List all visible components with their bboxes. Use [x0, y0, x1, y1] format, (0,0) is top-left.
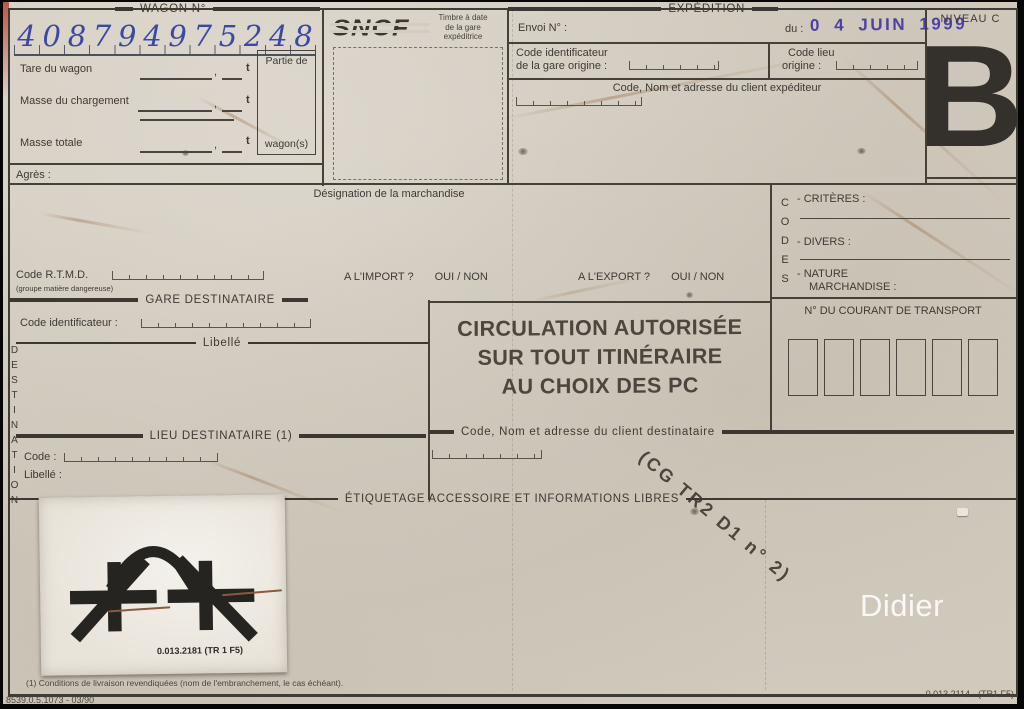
tare-line — [140, 78, 212, 80]
circulation-stamp: CIRCULATION AUTORISÉE SUR TOUT ITINÉRAIR… — [432, 313, 769, 402]
divider — [507, 8, 509, 184]
courant-box — [824, 339, 854, 396]
rtmd-label: Code R.T.M.D. — [16, 269, 88, 281]
code-identificateur-field — [141, 319, 311, 328]
sticker-ref: 0.013.2181 (TR 1 F5) — [157, 645, 243, 656]
criteres-label: - CRITÈRES : — [797, 193, 865, 205]
lieu-libelle-label: Libellé : — [24, 469, 62, 481]
courant-title: N° DU COURANT DE TRANSPORT — [772, 305, 1014, 317]
client-destinataire-code-field — [432, 450, 542, 459]
wagon-header-label: WAGON N° — [140, 3, 206, 15]
courant-box — [968, 339, 998, 396]
wagon-digit: 5 — [215, 21, 240, 54]
agres-divider — [8, 163, 322, 165]
codes-vertical-label: CODES — [779, 197, 791, 292]
form-ref-left: 8539.0.5.1073 - 03/90 — [6, 695, 94, 705]
charge-unit: t — [246, 94, 250, 106]
charge-decimal-line — [222, 110, 242, 112]
wagon-digit: 7 — [90, 21, 115, 54]
timbre-label: Timbre à date de la gare expéditrice — [420, 13, 506, 42]
extra-line — [140, 119, 234, 121]
tare-label: Tare du wagon — [20, 63, 92, 75]
lieu-code-label: Code : — [24, 451, 56, 463]
divider — [322, 8, 324, 186]
wagon-digit: 8 — [64, 21, 89, 54]
totale-line — [140, 151, 212, 153]
totale-decimal-line — [222, 151, 242, 153]
export-oui-non: OUI / NON — [671, 271, 724, 283]
tare-decimal-line — [222, 78, 242, 80]
courant-box — [932, 339, 962, 396]
envoi-label: Envoi N° : — [518, 22, 567, 34]
partie-de-wagons-box: Partie de wagon(s) — [257, 50, 316, 155]
code-ident-gare-label-2: de la gare origine : — [516, 60, 607, 72]
scanned-waybill-scene: WAGON N° 4 0 8 7 9 4 9 7 5 2 4 8 Partie … — [0, 0, 1024, 709]
designation-header: Désignation de la marchandise — [8, 188, 770, 200]
wagon-digit: 4 — [14, 21, 39, 54]
wagon-digit: 7 — [190, 21, 215, 54]
code-lieu-label-2: origine : — [782, 60, 821, 72]
courant-code-boxes — [788, 339, 998, 396]
divider — [507, 42, 925, 44]
fold-line — [765, 500, 766, 690]
nature-label-1: - NATURE — [797, 268, 848, 280]
wagon-digit: 0 — [39, 21, 64, 54]
client-expediteur-header: Code, Nom et adresse du client expéditeu… — [508, 82, 926, 94]
totale-label: Masse totale — [20, 137, 82, 149]
client-destinataire-header: Code, Nom et adresse du client destinata… — [430, 426, 1014, 438]
code-identificateur-label: Code identificateur : — [20, 317, 118, 329]
watermark: Didier — [860, 588, 944, 624]
nature-label-2: MARCHANDISE : — [809, 281, 896, 293]
courant-box — [788, 339, 818, 396]
courant-box — [860, 339, 890, 396]
totale-unit: t — [246, 135, 250, 147]
export-question: A L'EXPORT ? OUI / NON — [578, 271, 724, 283]
hump-shunting-label: 0.013.2181 (TR 1 F5) — [39, 494, 287, 675]
rtmd-field — [112, 271, 264, 280]
tare-unit: t — [246, 62, 250, 74]
code-lieu-field — [836, 61, 918, 70]
comma: , — [214, 98, 217, 110]
charge-label: Masse du chargement — [20, 95, 129, 107]
code-ident-gare-label-1: Code identificateur — [516, 47, 608, 59]
courant-box — [896, 339, 926, 396]
priority-letter: B — [925, 22, 1016, 173]
code-lieu-label-1: Code lieu — [788, 47, 834, 59]
client-expediteur-code-field — [516, 97, 642, 106]
logo-stripe — [330, 30, 430, 33]
destination-vertical-label: DESTINATION — [9, 345, 20, 510]
agres-label: Agrès : — [16, 169, 51, 181]
import-oui-non: OUI / NON — [435, 271, 488, 283]
gare-destinataire-header: GARE DESTINATAIRE — [8, 294, 308, 306]
divider — [768, 42, 770, 78]
divers-label: - DIVERS : — [797, 236, 851, 248]
divider — [428, 300, 430, 500]
criteres-line — [800, 218, 1010, 219]
wagon-digit: 9 — [115, 21, 140, 54]
charge-line — [138, 110, 212, 112]
divider — [428, 301, 771, 303]
rtmd-note: (groupe matière dangereuse) — [16, 284, 113, 293]
logo-stripe — [330, 23, 430, 26]
timbre-stamp-area — [333, 47, 503, 180]
partie-de-label: Partie de — [265, 55, 307, 67]
divers-line — [800, 259, 1010, 260]
comma: , — [214, 139, 217, 151]
wagon-digit: 4 — [140, 21, 165, 54]
wagon-section-header: WAGON N° — [115, 3, 320, 15]
wagons-label: wagon(s) — [265, 138, 308, 150]
expedition-header-label: EXPÉDITION — [668, 3, 745, 15]
divider — [925, 177, 1016, 179]
comma: , — [214, 66, 217, 78]
footnote: (1) Conditions de livraison revendiquées… — [26, 678, 343, 688]
wagon-digit: 9 — [165, 21, 190, 54]
libelle-header: Libellé — [16, 337, 428, 349]
divider — [770, 297, 1016, 299]
hump-shunting-prohibited-icon — [61, 521, 263, 650]
code-ident-gare-field — [629, 61, 719, 70]
lieu-destinataire-header: LIEU DESTINATAIRE (1) — [16, 430, 426, 442]
divider — [8, 183, 1016, 185]
expedition-section-header: EXPÉDITION — [508, 3, 778, 15]
lieu-code-field — [64, 453, 218, 462]
divider — [507, 78, 925, 80]
form-ref-right: 0.013.2114 - (TR1 F5) — [888, 689, 1014, 699]
du-label: du : — [785, 23, 803, 35]
import-question: A L'IMPORT ? OUI / NON — [344, 271, 488, 283]
